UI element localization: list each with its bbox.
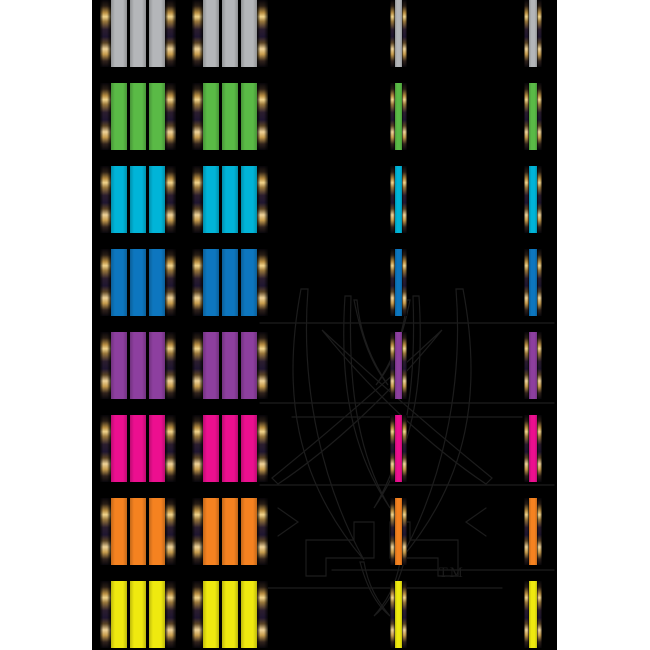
ribbon-strip: [529, 498, 537, 565]
gold-bead-right: [402, 581, 407, 648]
ribbon-panel-wide: [192, 166, 268, 233]
ribbon-strip-thin: [524, 249, 542, 316]
ribbon-strip-thin: [524, 581, 542, 648]
ribbon-strip: [241, 332, 257, 399]
gold-trim-left: [100, 249, 111, 316]
gold-trim-left: [192, 83, 203, 150]
ribbon-strip: [395, 332, 402, 399]
ribbon-strip: [149, 249, 165, 316]
ribbon-strips: [111, 332, 165, 399]
ribbon-strip: [222, 0, 238, 67]
gold-bead-right: [537, 166, 542, 233]
ribbon-strips: [203, 415, 257, 482]
ribbon-row-silver: [92, 0, 557, 67]
gold-trim-right: [165, 0, 176, 67]
ribbon-strip: [149, 498, 165, 565]
ribbon-row-magenta: [92, 415, 557, 482]
ribbon-strip: [203, 498, 219, 565]
ribbon-strips: [111, 581, 165, 648]
ribbon-strip: [395, 415, 402, 482]
ribbon-strips: [203, 166, 257, 233]
gold-trim-right: [257, 332, 268, 399]
ribbon-strip: [203, 332, 219, 399]
gold-trim-right: [165, 498, 176, 565]
ribbon-panel-wide: [192, 249, 268, 316]
gold-trim-right: [165, 83, 176, 150]
ribbon-strip: [529, 415, 537, 482]
ribbon-strip: [203, 249, 219, 316]
ribbon-strip: [529, 83, 537, 150]
ribbon-strip: [130, 166, 146, 233]
gold-trim-left: [192, 249, 203, 316]
ribbon-strip: [222, 332, 238, 399]
ribbon-strip: [241, 249, 257, 316]
ribbon-strip: [111, 249, 127, 316]
ribbon-strip: [203, 0, 219, 67]
ribbon-strips: [111, 83, 165, 150]
ribbon-strip: [203, 581, 219, 648]
gold-bead-right: [537, 249, 542, 316]
ribbon-strip: [241, 166, 257, 233]
ribbon-strip: [130, 83, 146, 150]
ribbon-strip: [241, 0, 257, 67]
ribbon-strip: [529, 332, 537, 399]
ribbon-strips: [203, 0, 257, 67]
ribbon-panel-wide: [100, 415, 176, 482]
gold-trim-right: [165, 249, 176, 316]
ribbon-strip: [203, 166, 219, 233]
gold-trim-right: [257, 0, 268, 67]
ribbon-strip: [395, 166, 402, 233]
ribbon-panel-wide: [100, 249, 176, 316]
ribbon-panel-wide: [100, 332, 176, 399]
ribbon-row-green: [92, 83, 557, 150]
ribbon-strip: [149, 581, 165, 648]
ribbon-strip-thin: [390, 249, 407, 316]
gold-trim-left: [192, 581, 203, 648]
gold-bead-right: [537, 498, 542, 565]
ribbon-rows: [92, 0, 557, 650]
gold-trim-right: [257, 498, 268, 565]
ribbon-row-cyan: [92, 166, 557, 233]
ribbon-strip: [203, 415, 219, 482]
ribbon-strips: [203, 249, 257, 316]
ribbon-strip: [529, 166, 537, 233]
gold-trim-left: [192, 332, 203, 399]
ribbon-panel-wide: [192, 83, 268, 150]
ribbon-strip: [130, 332, 146, 399]
ribbon-strip: [222, 581, 238, 648]
gold-trim-right: [165, 332, 176, 399]
ribbon-strip-thin: [524, 498, 542, 565]
ribbon-strip: [111, 581, 127, 648]
ribbon-strip: [111, 166, 127, 233]
ribbon-strip: [111, 0, 127, 67]
ribbon-strip: [130, 249, 146, 316]
gold-bead-right: [537, 332, 542, 399]
ribbon-strip-thin: [390, 415, 407, 482]
ribbon-row-orange: [92, 498, 557, 565]
ribbon-strip-thin: [390, 166, 407, 233]
gold-trim-left: [100, 498, 111, 565]
ribbon-strip-thin: [390, 332, 407, 399]
ribbon-strip: [130, 581, 146, 648]
gold-trim-right: [257, 581, 268, 648]
ribbon-strip: [529, 249, 537, 316]
ribbon-strips: [111, 0, 165, 67]
ribbon-strip: [241, 498, 257, 565]
ribbon-strips: [203, 498, 257, 565]
gold-trim-left: [100, 83, 111, 150]
ribbon-panel-wide: [192, 498, 268, 565]
gold-trim-left: [192, 415, 203, 482]
gold-trim-right: [165, 415, 176, 482]
gold-bead-right: [402, 415, 407, 482]
ribbon-panel-wide: [100, 498, 176, 565]
gold-bead-right: [402, 166, 407, 233]
gold-trim-right: [257, 166, 268, 233]
gold-bead-right: [537, 83, 542, 150]
ribbon-strip: [395, 249, 402, 316]
gold-trim-right: [257, 83, 268, 150]
gold-bead-right: [402, 498, 407, 565]
ribbon-strip: [149, 415, 165, 482]
ribbon-strip: [395, 83, 402, 150]
gold-trim-right: [257, 249, 268, 316]
gold-trim-left: [192, 0, 203, 67]
ribbon-strip-thin: [390, 83, 407, 150]
ribbon-strips: [111, 166, 165, 233]
ribbon-strip: [529, 0, 537, 67]
ribbon-strip: [130, 498, 146, 565]
ribbon-strip-thin: [524, 166, 542, 233]
ribbon-panel-wide: [192, 581, 268, 648]
ribbon-strip: [395, 498, 402, 565]
gold-trim-right: [165, 166, 176, 233]
gold-bead-right: [402, 249, 407, 316]
ribbon-strip-thin: [390, 0, 407, 67]
ribbon-strip: [395, 0, 402, 67]
ribbon-strips: [111, 249, 165, 316]
ribbon-panel-wide: [100, 166, 176, 233]
ribbon-strip: [241, 415, 257, 482]
ribbon-strip: [222, 415, 238, 482]
ribbon-strip: [222, 249, 238, 316]
gold-trim-left: [192, 166, 203, 233]
gold-trim-left: [100, 0, 111, 67]
ribbon-strip: [222, 83, 238, 150]
ribbon-strip-thin: [390, 498, 407, 565]
gold-trim-left: [100, 581, 111, 648]
ribbon-strip-thin: [524, 83, 542, 150]
ribbon-strip-thin: [390, 581, 407, 648]
ribbon-panel-wide: [192, 415, 268, 482]
gold-trim-right: [257, 415, 268, 482]
ribbon-row-purple: [92, 332, 557, 399]
gold-trim-left: [192, 498, 203, 565]
ribbon-strip: [149, 166, 165, 233]
gold-bead-right: [537, 415, 542, 482]
ribbon-strip: [111, 415, 127, 482]
ribbon-strip: [130, 0, 146, 67]
ribbon-strip: [395, 581, 402, 648]
ribbon-strip: [203, 83, 219, 150]
gold-bead-right: [402, 332, 407, 399]
ribbon-panel-wide: [192, 0, 268, 67]
ribbon-row-yellow: [92, 581, 557, 648]
ribbon-strip: [149, 332, 165, 399]
ribbon-strip-thin: [524, 0, 542, 67]
ribbon-strip: [130, 415, 146, 482]
ribbon-board: TM: [92, 0, 557, 650]
ribbon-strip: [529, 581, 537, 648]
ribbon-panel-wide: [100, 0, 176, 67]
ribbon-strip: [111, 498, 127, 565]
gold-trim-right: [165, 581, 176, 648]
ribbon-strips: [203, 332, 257, 399]
ribbon-strips: [111, 415, 165, 482]
ribbon-strip: [111, 332, 127, 399]
gold-bead-right: [537, 0, 542, 67]
gold-bead-right: [402, 0, 407, 67]
ribbon-strip: [111, 83, 127, 150]
ribbon-strip: [149, 83, 165, 150]
gold-trim-left: [100, 332, 111, 399]
gold-bead-right: [537, 581, 542, 648]
ribbon-strips: [111, 498, 165, 565]
gold-bead-right: [402, 83, 407, 150]
ribbon-strips: [203, 581, 257, 648]
gold-trim-left: [100, 166, 111, 233]
ribbon-strip-thin: [524, 332, 542, 399]
ribbon-row-blue: [92, 249, 557, 316]
ribbon-panel-wide: [100, 581, 176, 648]
ribbon-strips: [203, 83, 257, 150]
ribbon-panel-wide: [100, 83, 176, 150]
ribbon-strip: [241, 581, 257, 648]
ribbon-strip: [149, 0, 165, 67]
product-image: TM: [0, 0, 650, 650]
ribbon-panel-wide: [192, 332, 268, 399]
gold-trim-left: [100, 415, 111, 482]
ribbon-strip: [222, 166, 238, 233]
ribbon-strip-thin: [524, 415, 542, 482]
ribbon-strip: [241, 83, 257, 150]
ribbon-strip: [222, 498, 238, 565]
